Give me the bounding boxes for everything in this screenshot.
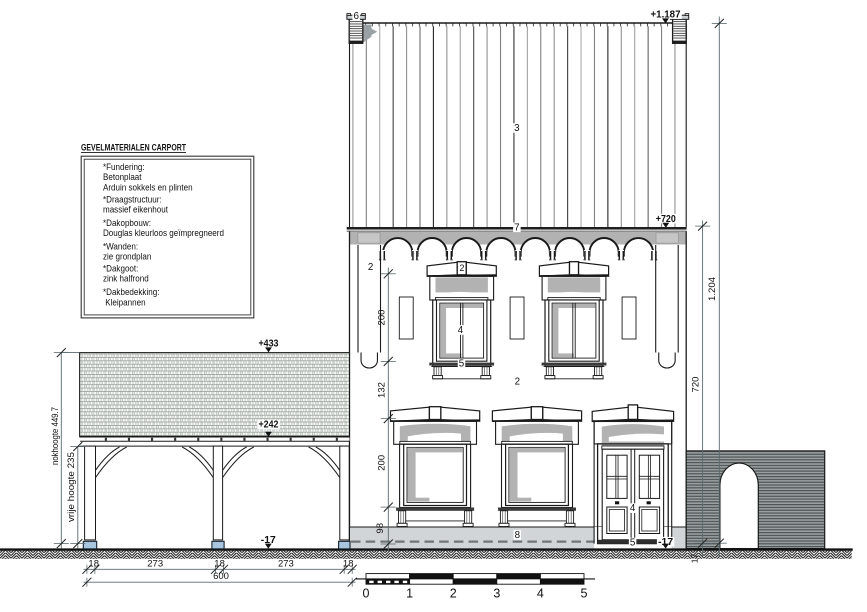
svg-text:2: 2 xyxy=(515,377,520,388)
svg-text:200: 200 xyxy=(377,455,388,471)
svg-text:5: 5 xyxy=(581,587,588,601)
svg-text:132: 132 xyxy=(377,382,388,398)
svg-text:1: 1 xyxy=(406,587,413,601)
svg-text:0: 0 xyxy=(363,587,370,601)
svg-text:2: 2 xyxy=(450,587,457,601)
svg-text:1.204: 1.204 xyxy=(707,277,718,301)
svg-text:+242: +242 xyxy=(259,420,279,431)
svg-text:6: 6 xyxy=(353,11,359,22)
svg-text:18: 18 xyxy=(214,558,225,569)
svg-text:2: 2 xyxy=(368,262,373,273)
svg-text:273: 273 xyxy=(278,558,294,569)
svg-text:273: 273 xyxy=(147,558,163,569)
svg-text:8: 8 xyxy=(515,530,521,541)
svg-text:*Dakbedekking:: *Dakbedekking: xyxy=(103,286,159,297)
svg-text:18: 18 xyxy=(88,558,99,569)
svg-text:98: 98 xyxy=(375,523,386,534)
svg-text:*Dakopbouw:: *Dakopbouw: xyxy=(103,217,151,228)
svg-text:nokhoogte 449.7: nokhoogte 449.7 xyxy=(50,407,60,465)
svg-text:zie grondplan: zie grondplan xyxy=(103,251,151,262)
svg-text:4: 4 xyxy=(458,325,464,336)
svg-text:5: 5 xyxy=(459,358,465,369)
svg-text:4: 4 xyxy=(537,587,544,601)
svg-text:200: 200 xyxy=(377,310,388,326)
svg-text:Betonplaat: Betonplaat xyxy=(103,172,142,183)
svg-text:2: 2 xyxy=(460,263,465,273)
svg-text:massief eikenhout: massief eikenhout xyxy=(103,204,168,215)
svg-text:18: 18 xyxy=(343,558,354,569)
svg-text:600: 600 xyxy=(213,571,229,582)
svg-text:720: 720 xyxy=(691,377,702,393)
svg-text:*Fundering:: *Fundering: xyxy=(103,161,145,172)
svg-text:vrije hoogte 235: vrije hoogte 235 xyxy=(66,452,76,522)
svg-text:Douglas kleurloos geïmpregneer: Douglas kleurloos geïmpregneerd xyxy=(103,227,224,238)
svg-text:zink halfrond: zink halfrond xyxy=(103,273,149,284)
svg-text:Kleipannen: Kleipannen xyxy=(103,297,146,308)
svg-text:GEVELMATERIALEN CARPORT: GEVELMATERIALEN CARPORT xyxy=(81,143,186,154)
svg-text:7: 7 xyxy=(514,222,519,233)
svg-text:5: 5 xyxy=(630,538,636,549)
svg-text:3: 3 xyxy=(514,123,520,134)
svg-text:17: 17 xyxy=(690,554,700,564)
svg-text:*Draagstructuur:: *Draagstructuur: xyxy=(103,194,162,205)
svg-text:*Dakgoot:: *Dakgoot: xyxy=(103,263,138,274)
svg-text:3: 3 xyxy=(493,587,500,601)
svg-text:Arduin sokkels en plinten: Arduin sokkels en plinten xyxy=(103,182,193,193)
svg-text:*Wanden:: *Wanden: xyxy=(103,241,138,252)
svg-text:4: 4 xyxy=(630,503,636,514)
